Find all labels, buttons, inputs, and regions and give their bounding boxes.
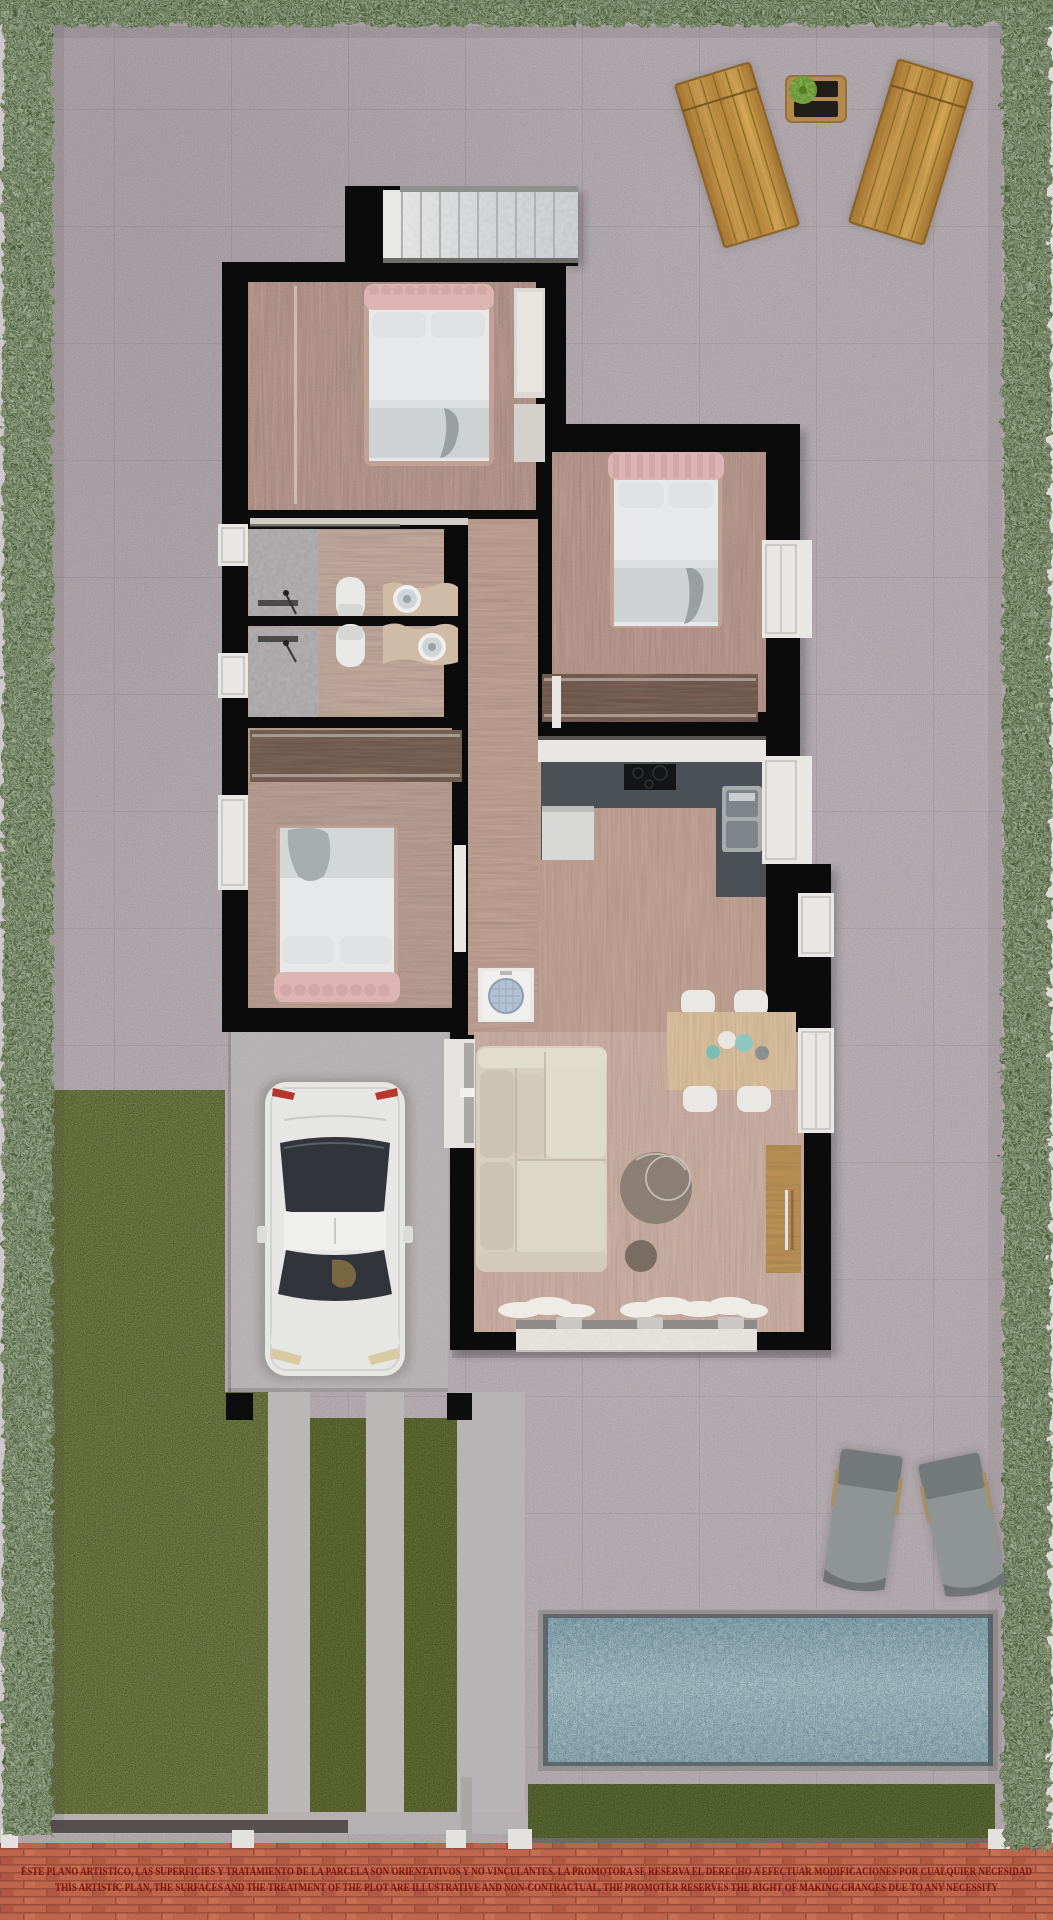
svg-text:ESTE PLANO ARTISTICO, LAS SUPE: ESTE PLANO ARTISTICO, LAS SUPERFICIES Y … [21, 1866, 1032, 1878]
svg-text:THIS ARTISTIC PLAN, THE SURFAC: THIS ARTISTIC PLAN, THE SURFACES AND THE… [55, 1882, 999, 1894]
